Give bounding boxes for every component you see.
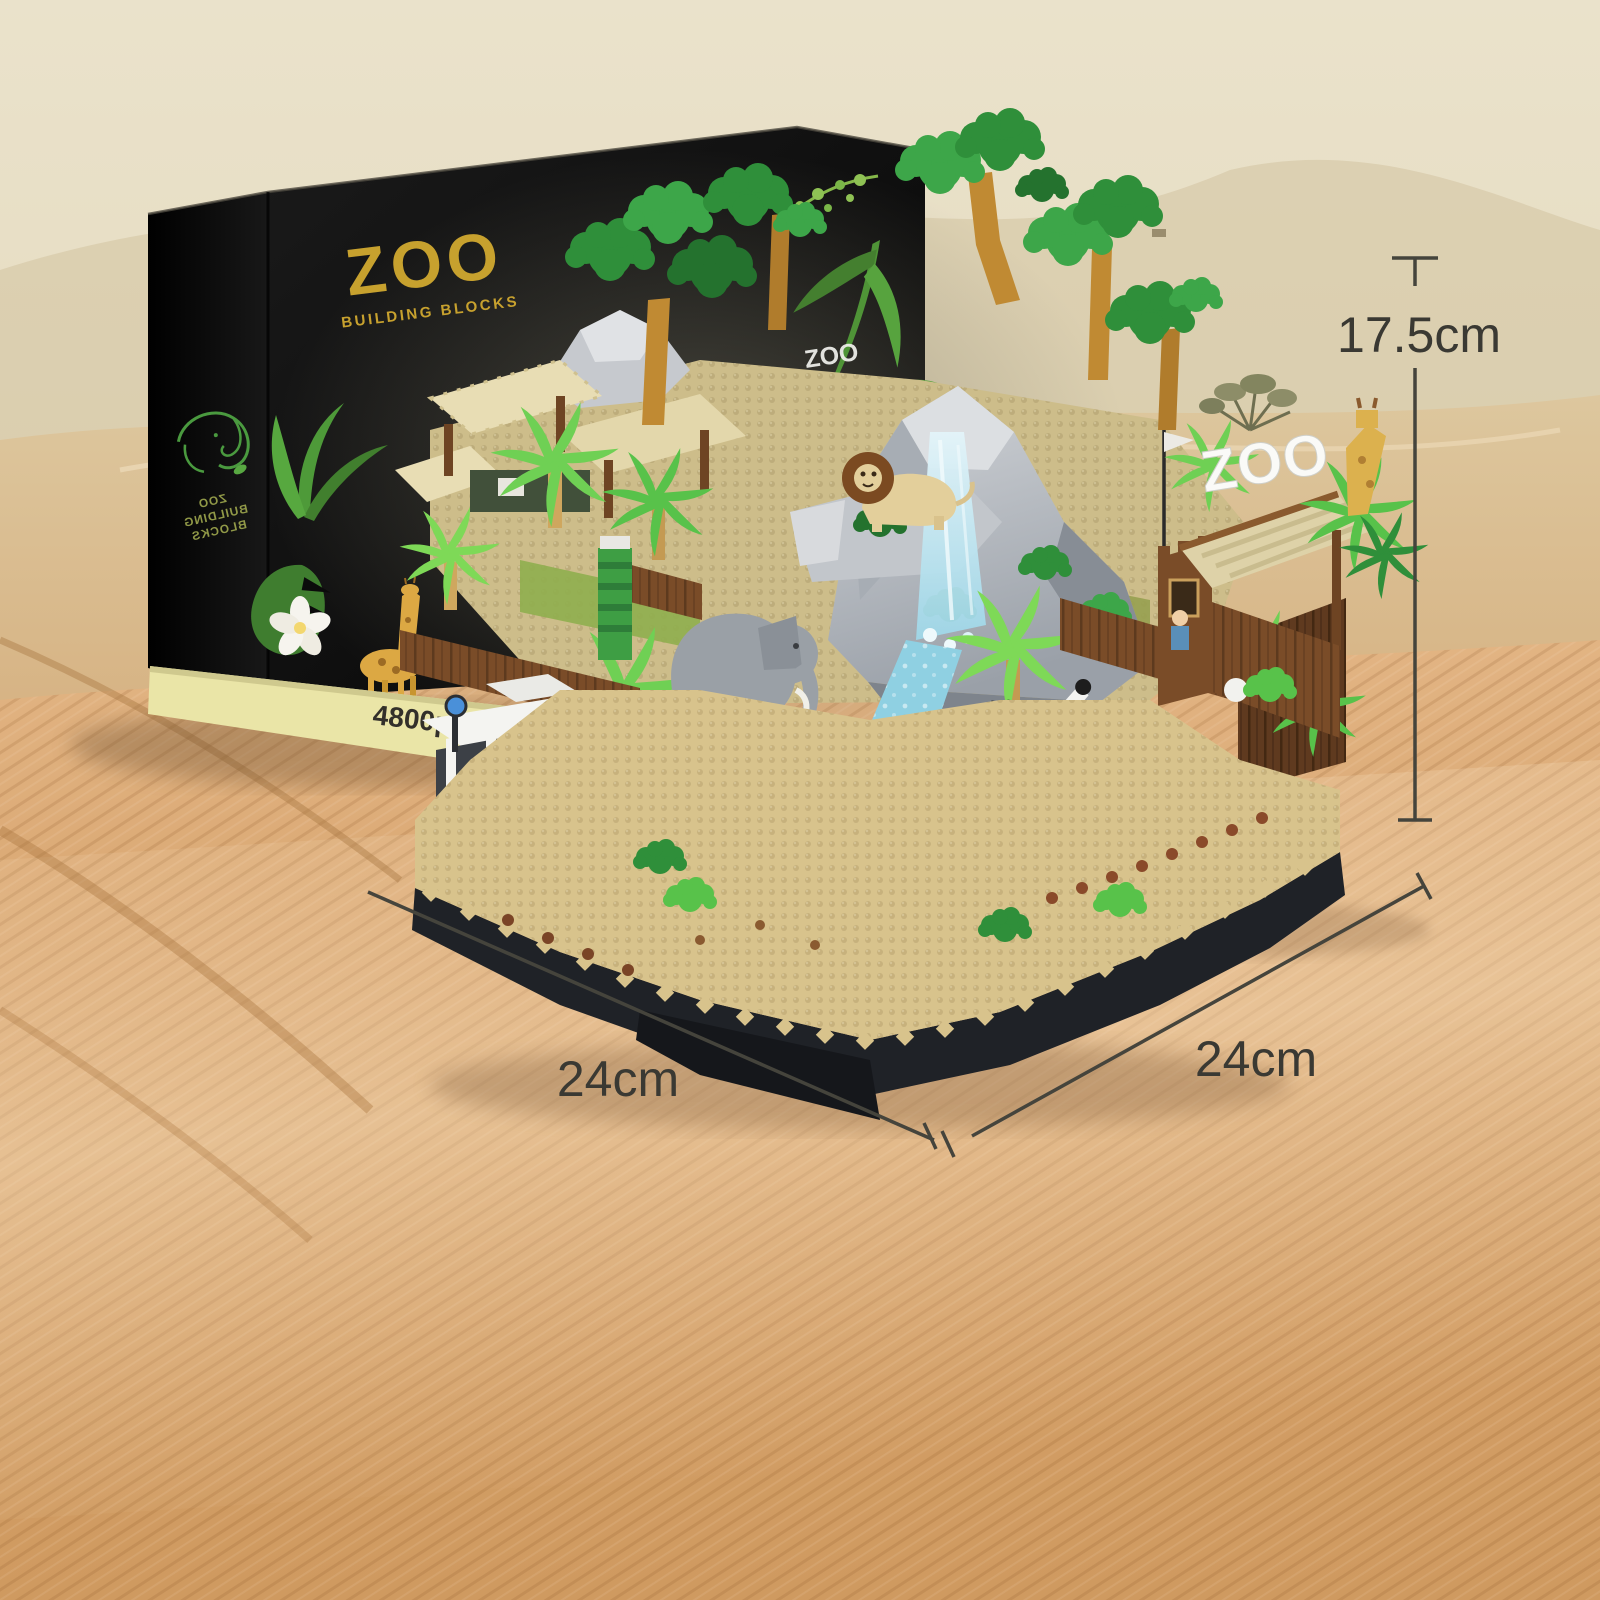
height-label: 17.5cm [1337, 307, 1501, 363]
bamboo-tower [598, 536, 632, 660]
width-right-label: 24cm [1195, 1031, 1317, 1087]
distant-object [1152, 229, 1166, 237]
tram-light [446, 696, 466, 716]
scene-canvas: ZOO BUILDING BLOCKS [0, 0, 1600, 1600]
gate-keeper-figure [1171, 610, 1189, 650]
product-photo-scene: ZOO BUILDING BLOCKS [0, 0, 1600, 1600]
width-left-label: 24cm [557, 1051, 679, 1107]
box-side-panel [148, 192, 268, 700]
